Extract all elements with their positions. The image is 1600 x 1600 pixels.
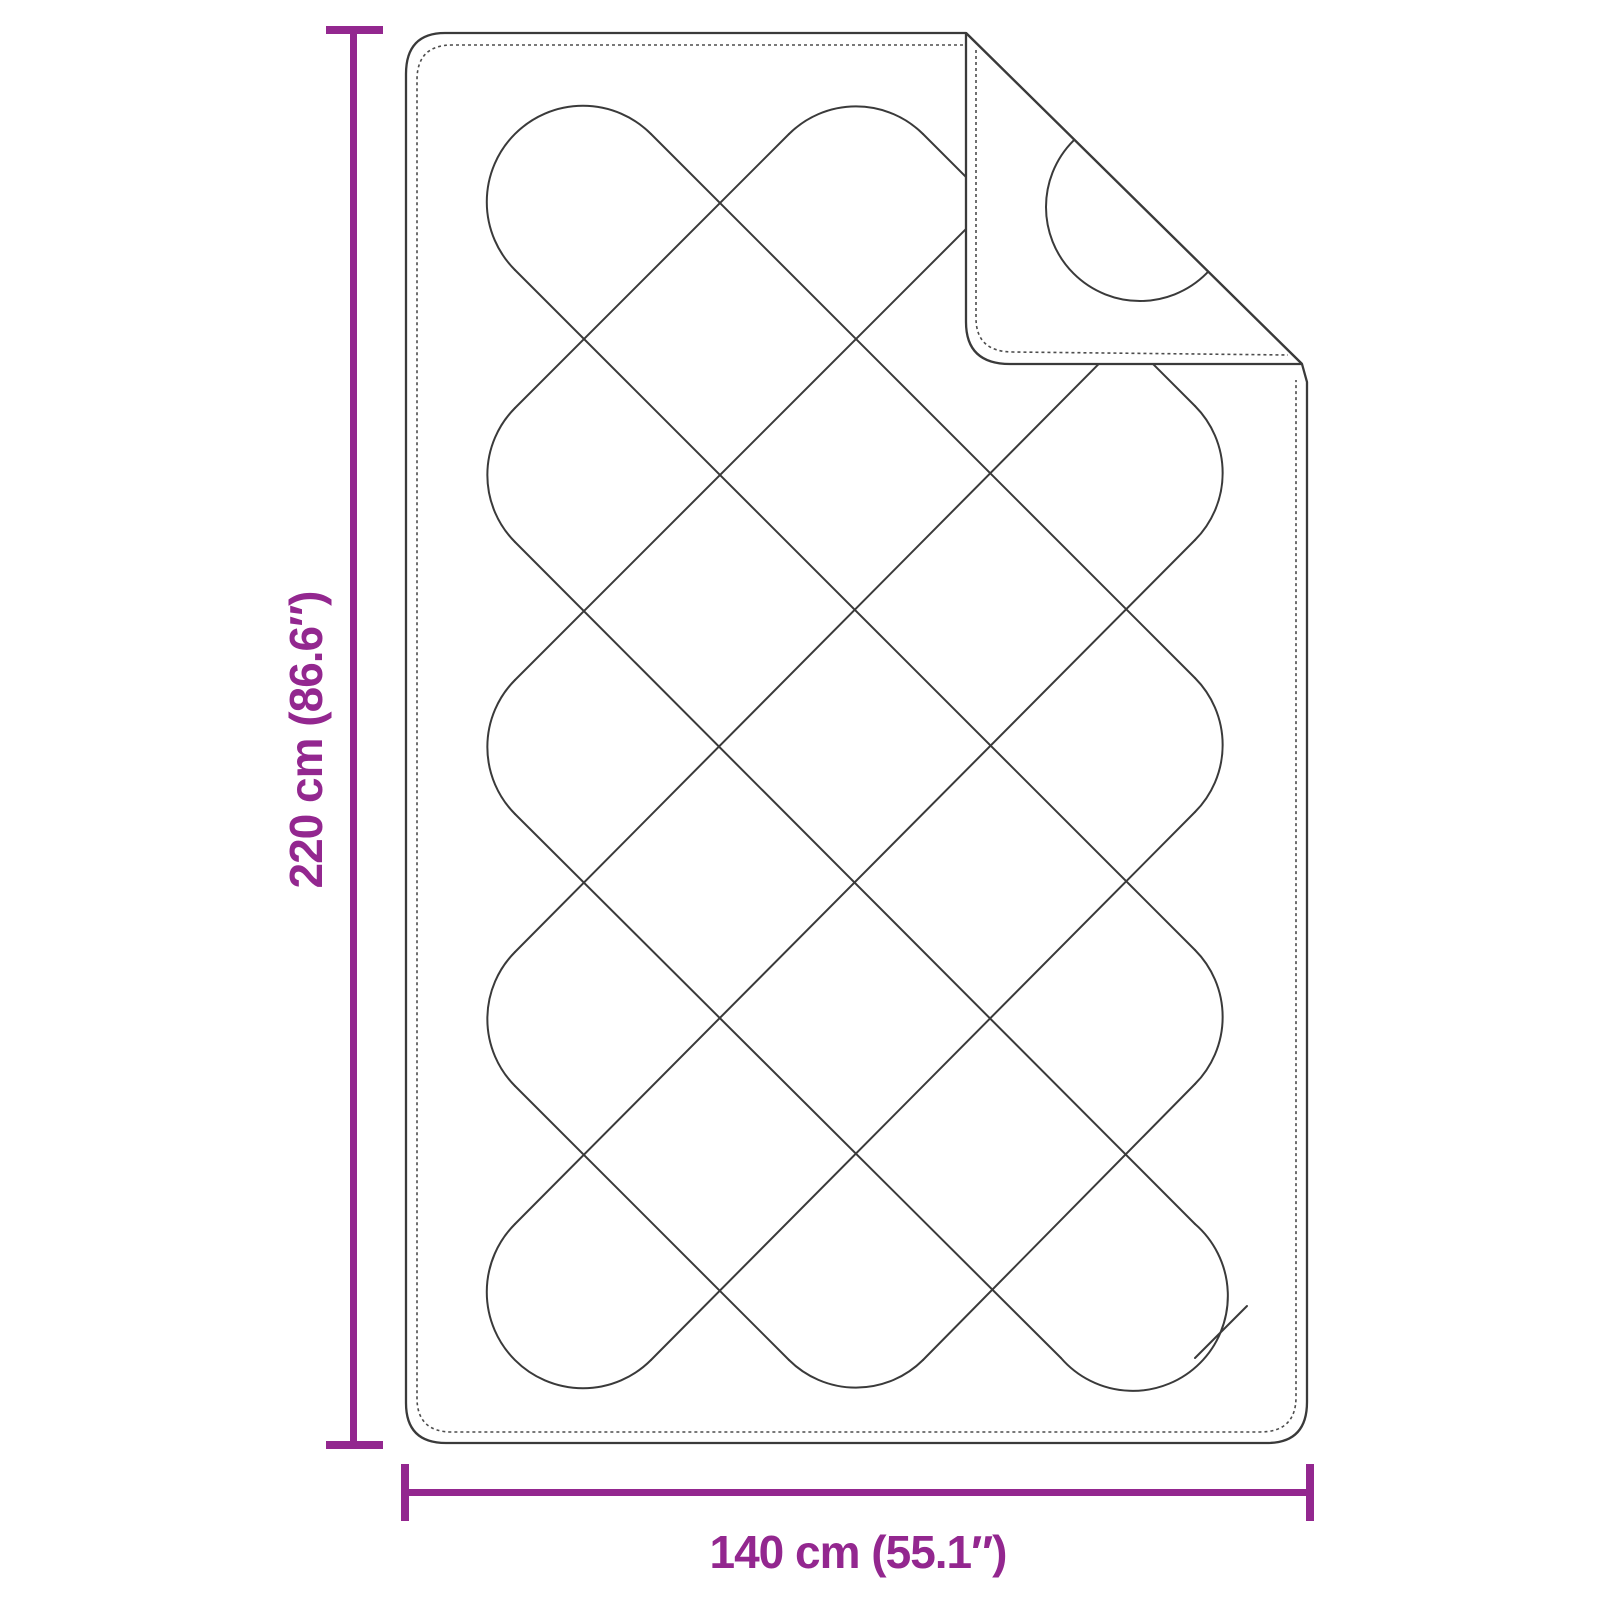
fold-flap: [966, 33, 1302, 364]
width-line: [403, 1489, 1311, 1496]
dimension-width: 140 cm (55.1″): [401, 1464, 1314, 1578]
height-label: 220 cm (86.6″): [280, 592, 332, 889]
product-dimension-diagram: 220 cm (86.6″) 140 cm (55.1″): [0, 0, 1600, 1600]
width-cap-left: [401, 1464, 409, 1521]
height-line: [350, 30, 357, 1445]
dimension-height: 220 cm (86.6″): [280, 26, 383, 1449]
blanket-diagram-svg: 220 cm (86.6″) 140 cm (55.1″): [0, 0, 1600, 1600]
height-cap-top: [326, 26, 383, 34]
width-label: 140 cm (55.1″): [710, 1526, 1007, 1578]
height-cap-bottom: [326, 1441, 383, 1449]
width-cap-right: [1306, 1464, 1314, 1521]
